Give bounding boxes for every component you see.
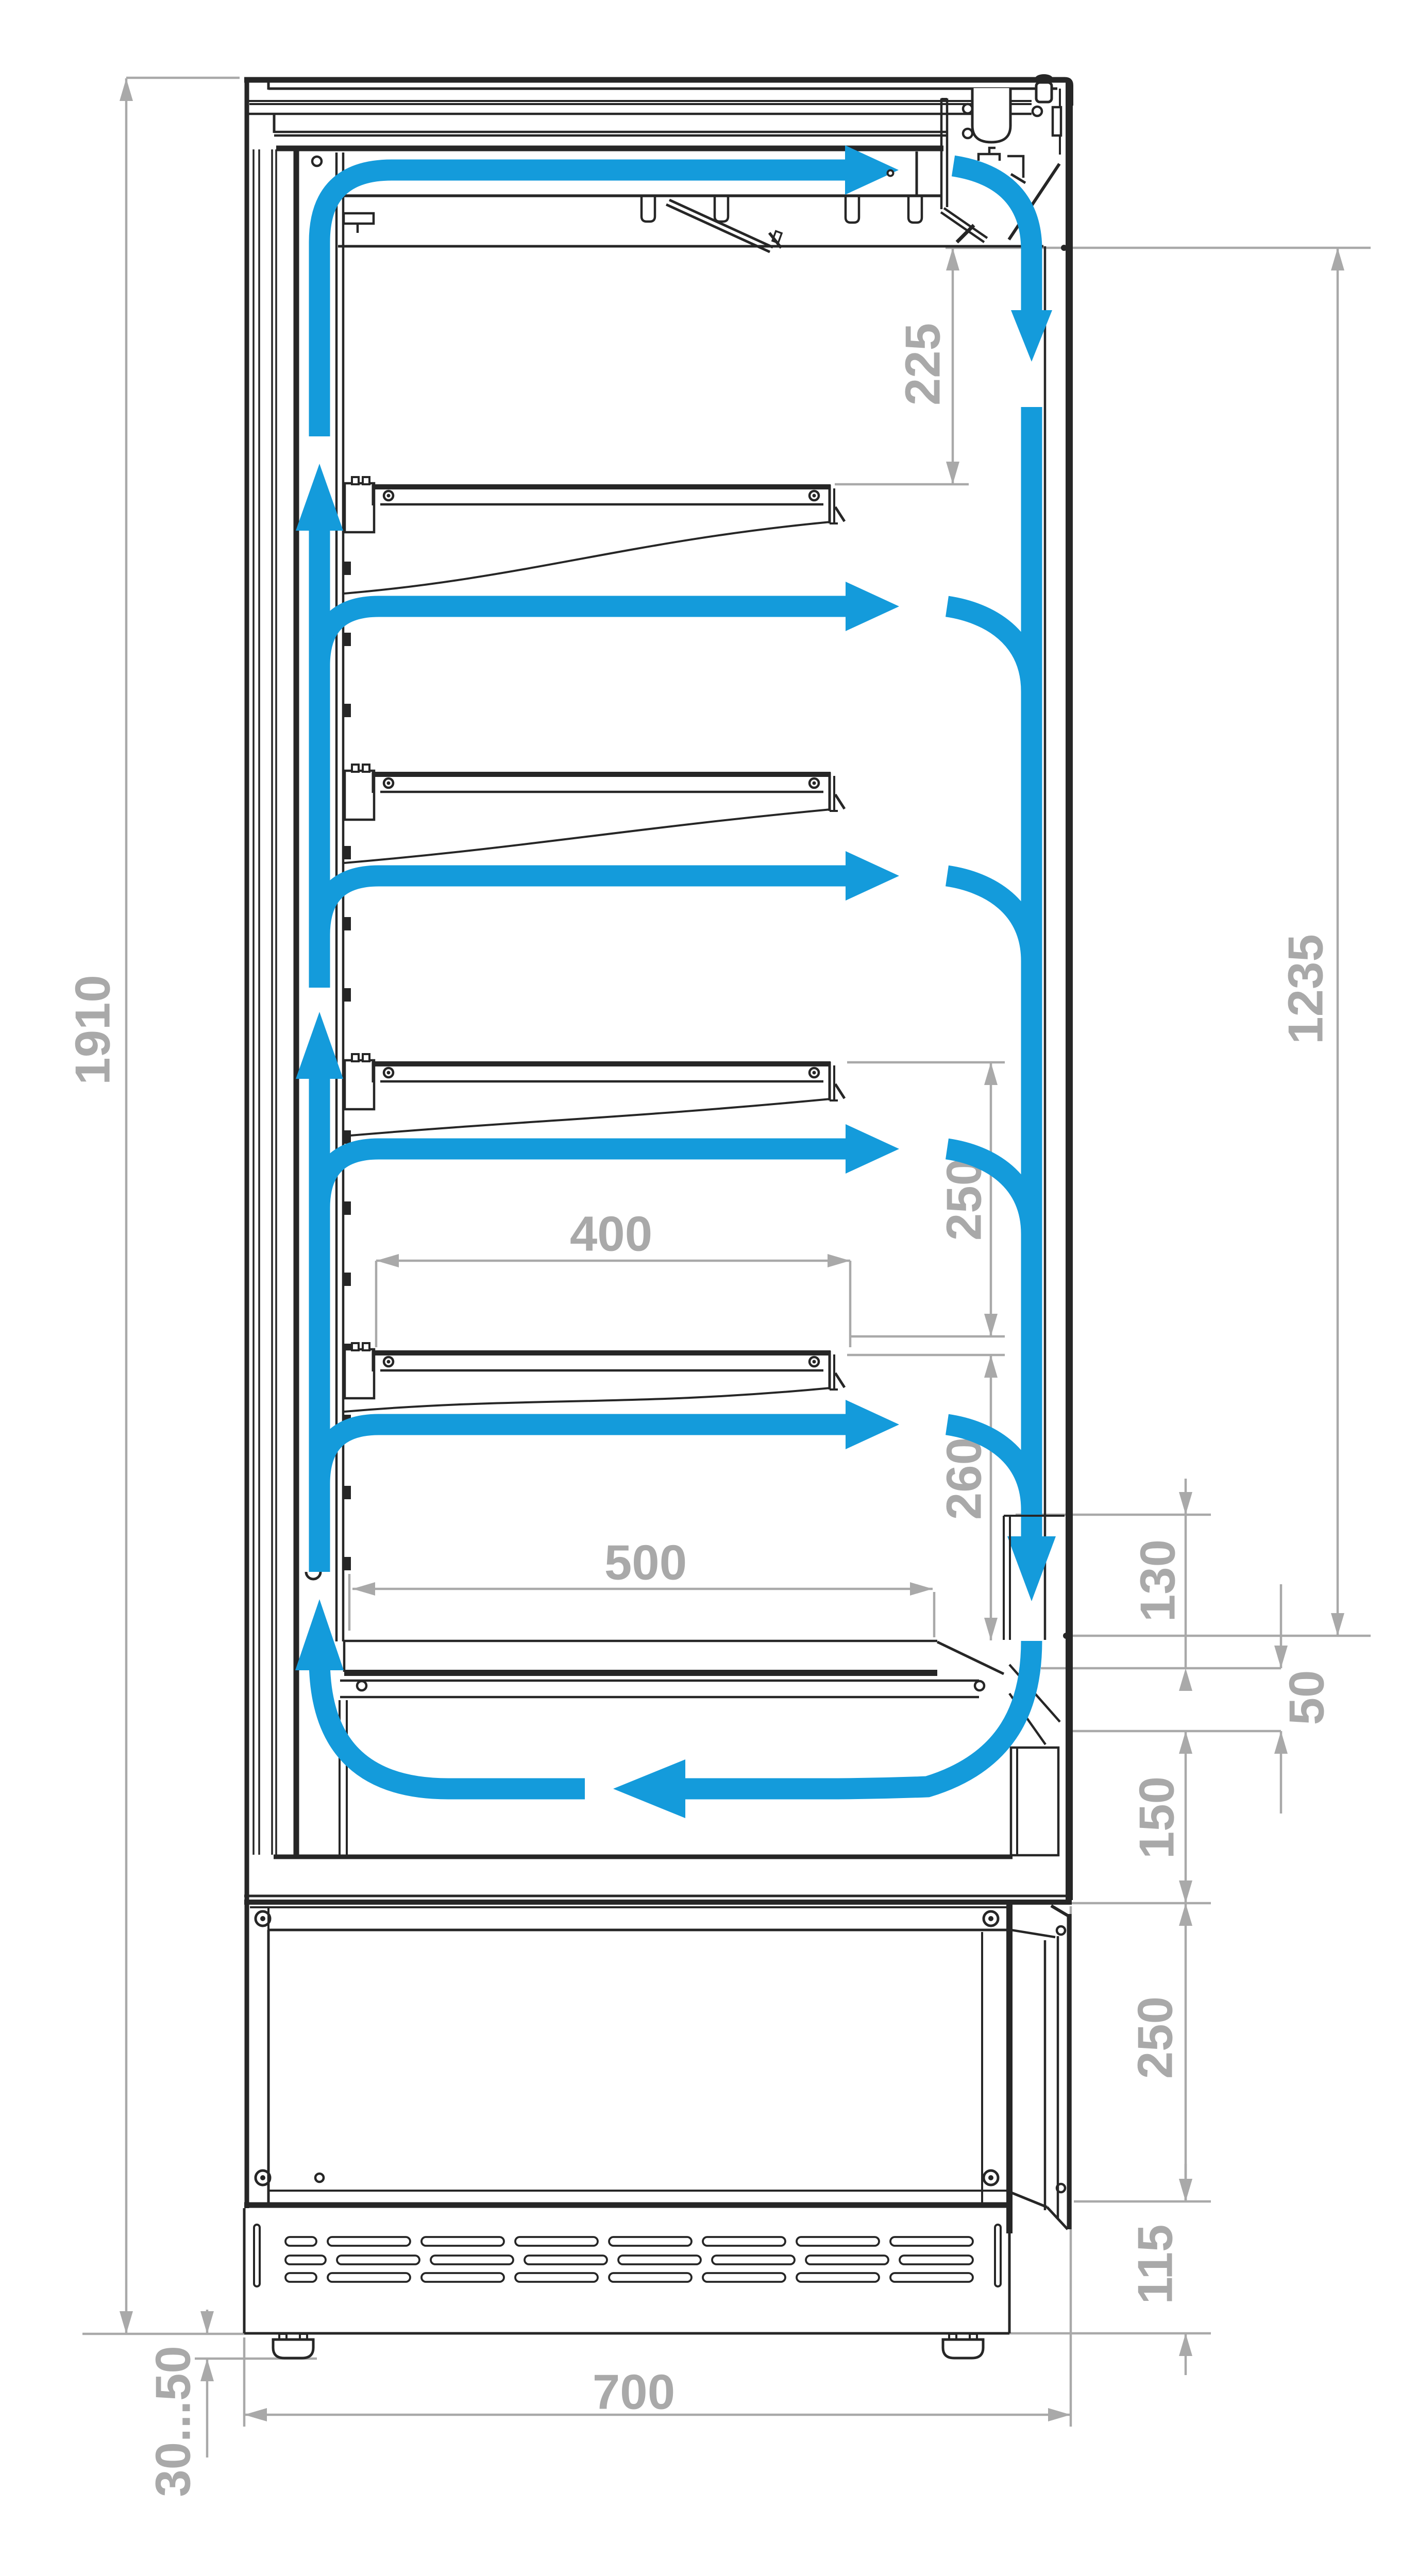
svg-text:400: 400 xyxy=(570,1207,652,1262)
svg-text:130: 130 xyxy=(1131,1539,1186,1622)
svg-text:1910: 1910 xyxy=(65,975,121,1085)
svg-text:1235: 1235 xyxy=(1278,934,1334,1044)
svg-text:30...50: 30...50 xyxy=(146,2346,201,2497)
svg-text:250: 250 xyxy=(1128,1996,1183,2079)
svg-text:150: 150 xyxy=(1129,1776,1185,1859)
svg-text:500: 500 xyxy=(604,1535,687,1590)
svg-text:260: 260 xyxy=(937,1437,992,1520)
svg-text:50: 50 xyxy=(1279,1670,1335,1725)
svg-text:225: 225 xyxy=(896,323,951,405)
svg-text:115: 115 xyxy=(1128,2225,1183,2304)
svg-text:700: 700 xyxy=(593,2365,675,2420)
